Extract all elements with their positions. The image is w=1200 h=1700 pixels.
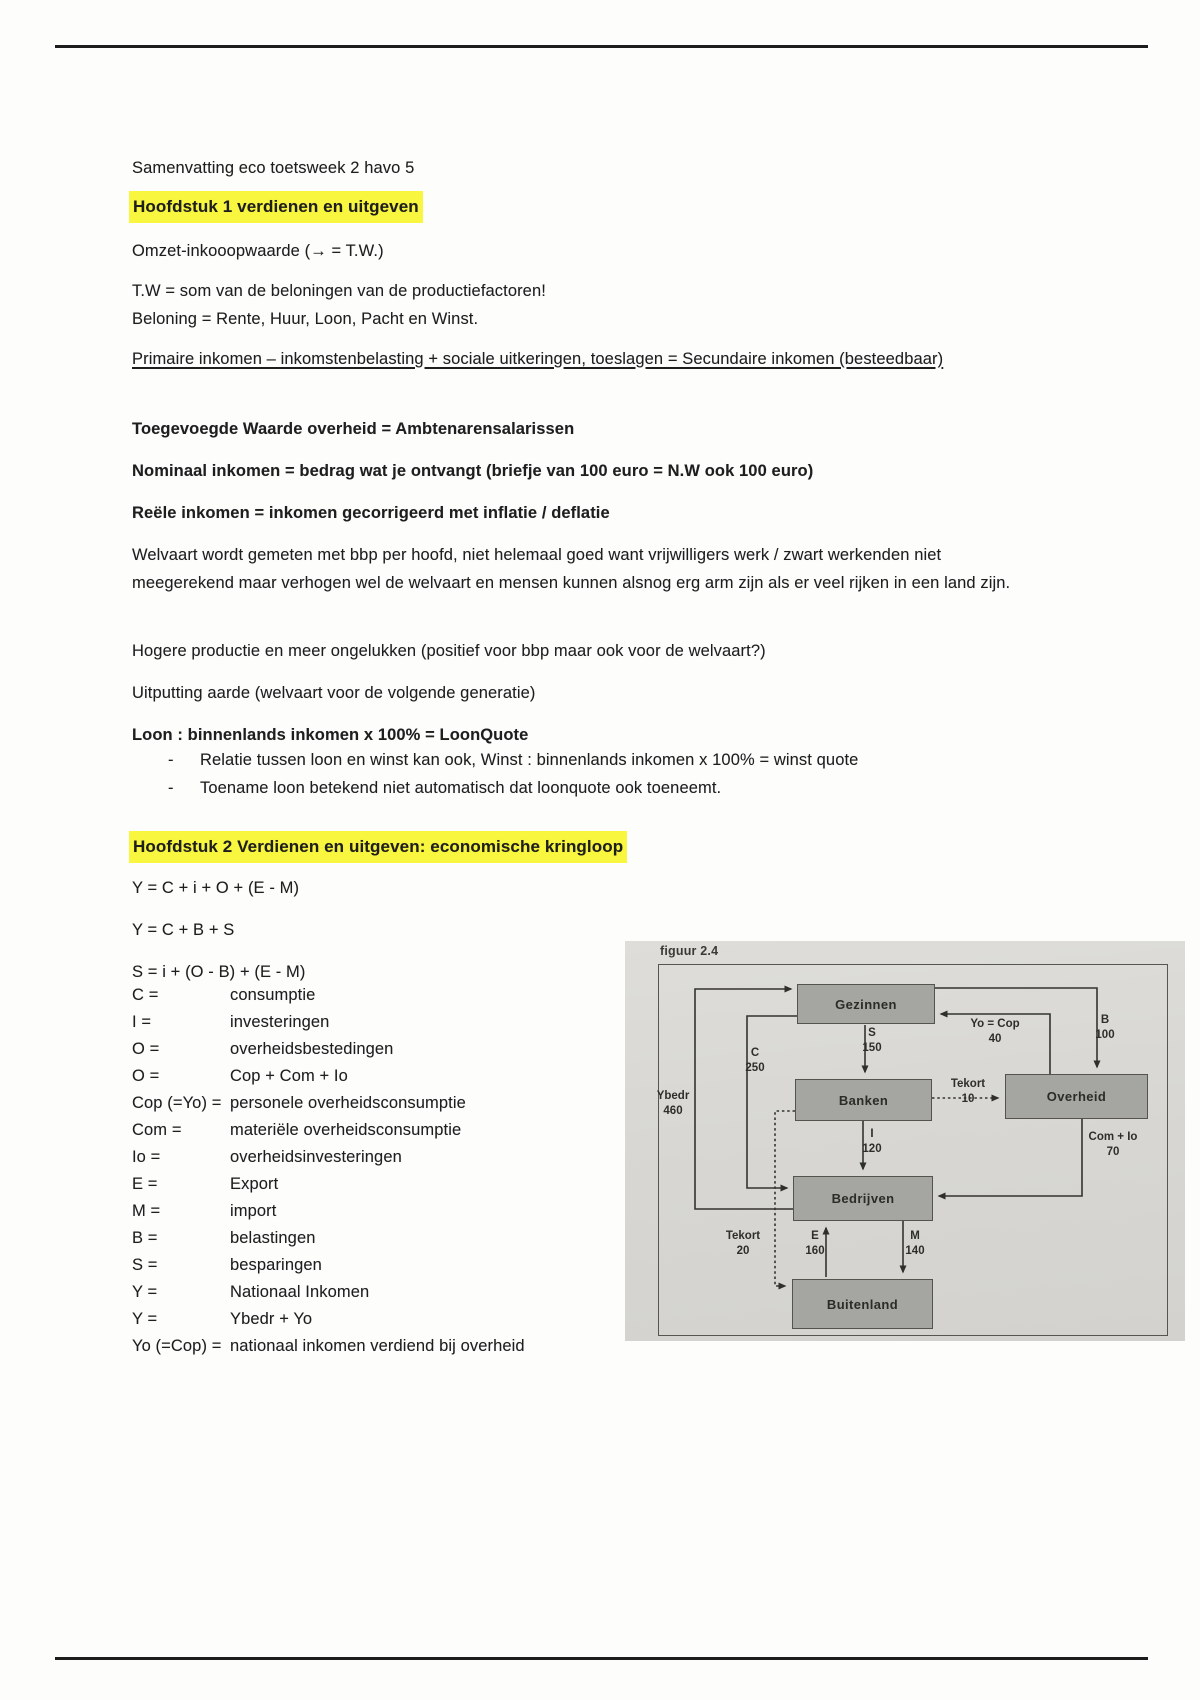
flow-label-i: I120 — [842, 1127, 902, 1157]
definition-row: Yo (=Cop) =nationaal inkomen verdiend bi… — [132, 1333, 525, 1360]
paragraph-reele-inkomen: Reële inkomen = inkomen gecorrigeerd met… — [132, 499, 610, 527]
flow-name: Yo = Cop — [960, 1017, 1030, 1032]
flow-label-tekort20: Tekort20 — [715, 1229, 771, 1259]
definition-row: C =consumptie — [132, 982, 525, 1009]
flow-name: E — [785, 1229, 845, 1244]
definition-row: Y =Ybedr + Yo — [132, 1306, 525, 1333]
definition-row: B =belastingen — [132, 1225, 525, 1252]
flow-name: Tekort — [938, 1077, 998, 1092]
node-banken: Banken — [795, 1079, 932, 1121]
definition-row: Y =Nationaal Inkomen — [132, 1279, 525, 1306]
paragraph-welvaart: Welvaart wordt gemeten met bbp per hoofd… — [132, 541, 1037, 597]
arrow-ybedr — [695, 989, 793, 1209]
flow-value: 100 — [1075, 1028, 1135, 1043]
node-overheid: Overheid — [1005, 1074, 1148, 1119]
definition-row: O =Cop + Com + Io — [132, 1063, 525, 1090]
definition-desc: belastingen — [230, 1229, 316, 1247]
definition-desc: personele overheidsconsumptie — [230, 1094, 466, 1112]
definition-list: C =consumptieI =investeringenO =overheid… — [132, 982, 525, 1360]
bullet-text: Toename loon betekend niet automatisch d… — [200, 774, 721, 802]
paragraph-nominaal-inkomen: Nominaal inkomen = bedrag wat je ontvang… — [132, 457, 813, 485]
definition-term: Cop (=Yo) = — [132, 1090, 230, 1117]
paragraph-primaire-inkomen: Primaire inkomen – inkomstenbelasting + … — [132, 345, 1047, 373]
flow-label-tekort10: Tekort10 — [938, 1077, 998, 1107]
arrow-tekort20 — [775, 1111, 795, 1286]
bullet-list: -Relatie tussen loon en winst kan ook, W… — [132, 746, 858, 802]
flow-value: 250 — [725, 1061, 785, 1076]
paragraph-omzet: Omzet-inkooopwaarde (→ = T.W.) — [132, 237, 384, 265]
node-bedrijven: Bedrijven — [793, 1176, 933, 1221]
flow-value: 20 — [715, 1244, 771, 1259]
flow-value: 120 — [842, 1142, 902, 1157]
flow-label-com_io: Com + Io70 — [1078, 1130, 1148, 1160]
flow-name: M — [885, 1229, 945, 1244]
definition-term: B = — [132, 1225, 230, 1252]
paragraph-overheid-tw: Toegevoegde Waarde overheid = Ambtenaren… — [132, 415, 574, 443]
flow-name: S — [842, 1026, 902, 1041]
chapter2-heading: Hoofdstuk 2 Verdienen en uitgeven: econo… — [129, 831, 627, 863]
formula-y-bestedingen: Y = C + i + O + (E - M) — [132, 874, 299, 902]
arrow-com-io — [939, 1119, 1082, 1196]
definition-row: E =Export — [132, 1171, 525, 1198]
definition-row: M =import — [132, 1198, 525, 1225]
definition-row: O =overheidsbestedingen — [132, 1036, 525, 1063]
definition-row: Com =materiële overheidsconsumptie — [132, 1117, 525, 1144]
definition-term: O = — [132, 1063, 230, 1090]
definition-term: Y = — [132, 1279, 230, 1306]
definition-desc: Nationaal Inkomen — [230, 1283, 369, 1301]
bullet-marker: - — [168, 774, 200, 802]
definition-desc: materiële overheidsconsumptie — [230, 1121, 461, 1139]
definition-desc: Cop + Com + Io — [230, 1067, 348, 1085]
definition-desc: overheidsinvesteringen — [230, 1148, 402, 1166]
definition-term: O = — [132, 1036, 230, 1063]
paragraph-uitputting: Uitputting aarde (welvaart voor de volge… — [132, 679, 535, 707]
flow-name: B — [1075, 1013, 1135, 1028]
definition-term: I = — [132, 1009, 230, 1036]
definition-desc: Export — [230, 1175, 278, 1193]
paragraph-hogere-productie: Hogere productie en meer ongelukken (pos… — [132, 637, 766, 665]
flow-label-yocop: Yo = Cop40 — [960, 1017, 1030, 1047]
definition-term: Yo (=Cop) = — [132, 1333, 230, 1360]
flow-name: Ybedr — [643, 1089, 703, 1104]
paragraph-toegevoegde-waarde: T.W = som van de beloningen van de produ… — [132, 277, 546, 333]
flow-name: C — [725, 1046, 785, 1061]
bullet-item: -Toename loon betekend niet automatisch … — [132, 774, 858, 802]
definition-row: Cop (=Yo) =personele overheidsconsumptie — [132, 1090, 525, 1117]
bullet-item: -Relatie tussen loon en winst kan ook, W… — [132, 746, 858, 774]
definition-desc: consumptie — [230, 986, 315, 1004]
node-gezinnen: Gezinnen — [797, 984, 935, 1024]
flow-label-b: B100 — [1075, 1013, 1135, 1043]
flow-name: Tekort — [715, 1229, 771, 1244]
definition-term: Io = — [132, 1144, 230, 1171]
flow-value: 460 — [643, 1104, 703, 1119]
kringloop-figure-photo: figuur 2.4 GezinnenBankenOverheidBedrijv… — [625, 941, 1185, 1341]
definition-row: S =besparingen — [132, 1252, 525, 1279]
node-buitenland: Buitenland — [792, 1279, 933, 1329]
flow-value: 160 — [785, 1244, 845, 1259]
chapter1-heading: Hoofdstuk 1 verdienen en uitgeven — [129, 191, 423, 223]
definition-desc: Ybedr + Yo — [230, 1310, 312, 1328]
flow-label-s: S150 — [842, 1026, 902, 1056]
arrow-c — [747, 1016, 797, 1188]
definition-term: Com = — [132, 1117, 230, 1144]
definition-term: Y = — [132, 1306, 230, 1333]
flow-value: 70 — [1078, 1145, 1148, 1160]
definition-desc: besparingen — [230, 1256, 322, 1274]
flow-value: 150 — [842, 1041, 902, 1056]
definition-row: Io =overheidsinvesteringen — [132, 1144, 525, 1171]
flow-value: 10 — [938, 1092, 998, 1107]
flow-label-e: E160 — [785, 1229, 845, 1259]
definition-desc: investeringen — [230, 1013, 329, 1031]
definition-desc: overheidsbestedingen — [230, 1040, 393, 1058]
flow-label-c: C250 — [725, 1046, 785, 1076]
flow-label-m: M140 — [885, 1229, 945, 1259]
page-bottom-rule — [55, 1657, 1148, 1660]
flow-name: I — [842, 1127, 902, 1142]
flow-value: 140 — [885, 1244, 945, 1259]
definition-term: M = — [132, 1198, 230, 1225]
definition-row: I =investeringen — [132, 1009, 525, 1036]
flow-name: Com + Io — [1078, 1130, 1148, 1145]
definition-term: C = — [132, 982, 230, 1009]
page-top-rule — [55, 45, 1148, 48]
formula-y-cbs: Y = C + B + S — [132, 916, 234, 944]
bullet-marker: - — [168, 746, 200, 774]
paragraph-loonquote: Loon : binnenlands inkomen x 100% = Loon… — [132, 721, 528, 749]
bullet-text: Relatie tussen loon en winst kan ook, Wi… — [200, 746, 858, 774]
document-title: Samenvatting eco toetsweek 2 havo 5 — [132, 154, 414, 182]
definition-term: E = — [132, 1171, 230, 1198]
definition-desc: nationaal inkomen verdiend bij overheid — [230, 1337, 525, 1355]
definition-desc: import — [230, 1202, 276, 1220]
definition-term: S = — [132, 1252, 230, 1279]
flow-label-ybedr: Ybedr460 — [643, 1089, 703, 1119]
flow-value: 40 — [960, 1032, 1030, 1047]
